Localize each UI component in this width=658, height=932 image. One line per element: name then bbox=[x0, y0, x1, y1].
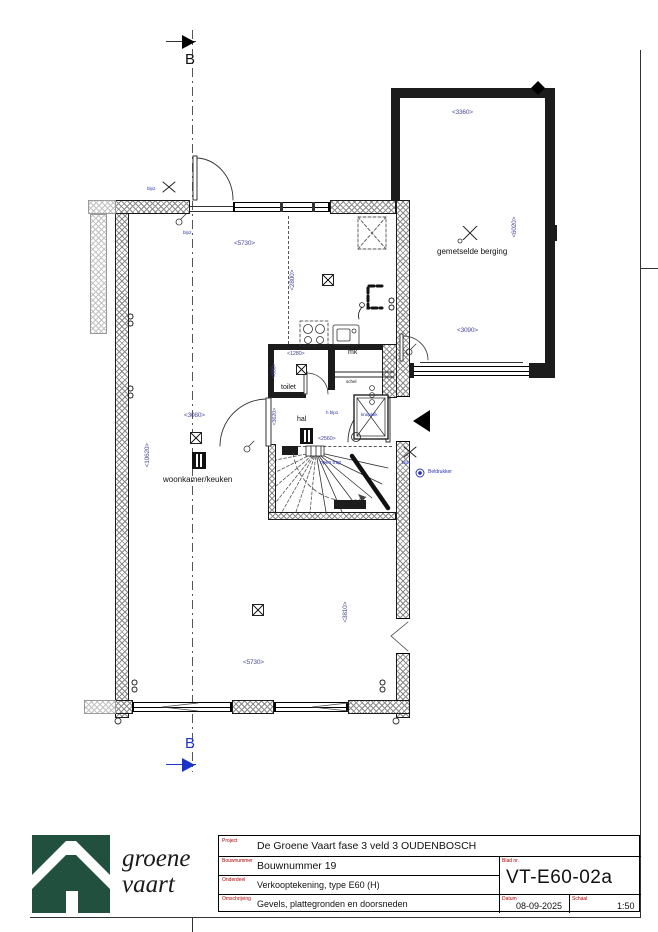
dim-5730-top: <5730> bbox=[234, 241, 255, 248]
dim-6020: <6020> bbox=[505, 224, 526, 231]
tb-col-line-2 bbox=[569, 894, 570, 913]
socket-south-1 bbox=[130, 678, 139, 694]
tb-col-line-1 bbox=[499, 856, 500, 913]
kitchen-hob bbox=[300, 321, 328, 346]
plan-linework bbox=[0, 0, 658, 932]
logo-word-2: vaart bbox=[122, 872, 191, 898]
dim-3090: <3090> bbox=[457, 328, 478, 335]
entrance-arrow-icon bbox=[413, 410, 430, 432]
room-label-toilet: toilet bbox=[281, 384, 296, 391]
tb-row-line-2 bbox=[219, 875, 499, 876]
company-logo bbox=[32, 835, 110, 913]
dim-3080: <3080> bbox=[184, 413, 205, 420]
boiler-position bbox=[358, 286, 382, 319]
stairs bbox=[276, 446, 388, 512]
toilet-door bbox=[304, 372, 328, 394]
bell-button-icon bbox=[416, 469, 424, 477]
tb-label-omschrijving: Omschrijving bbox=[222, 896, 251, 902]
room-label-mk: mk bbox=[348, 349, 357, 356]
tb-row-line-3 bbox=[219, 894, 641, 895]
tb-label-project: Project bbox=[222, 838, 238, 844]
dim-3360: <3360> bbox=[452, 110, 473, 117]
tb-label-schaal: Schaal bbox=[572, 896, 587, 902]
tb-datum: 08-09-2025 bbox=[516, 901, 562, 911]
tb-row-line-1 bbox=[219, 856, 641, 857]
tb-label-bouwnummer: Bouwnummer bbox=[222, 858, 253, 864]
dim-880: <880> bbox=[268, 368, 283, 374]
tb-blad-nr: VT-E60-02a bbox=[506, 867, 612, 889]
logo-house-icon bbox=[32, 835, 110, 913]
logo-word-1: groene bbox=[122, 846, 191, 872]
lightpoint-living-2 bbox=[252, 604, 264, 616]
radiator-hall bbox=[300, 428, 313, 444]
tb-label-blad: Blad nr. bbox=[502, 858, 519, 864]
label-blp2-b: blp2 bbox=[183, 231, 192, 236]
socket-west-1 bbox=[126, 312, 135, 328]
front-door bbox=[193, 156, 233, 200]
label-open-stair: open trap bbox=[320, 461, 341, 466]
storage-lamp-dot bbox=[458, 239, 462, 243]
socket-south-2 bbox=[378, 678, 387, 694]
tb-omschrijving: Gevels, plattegronden en doorsneden bbox=[257, 899, 408, 909]
socket-kitchen-east bbox=[387, 296, 396, 312]
tb-project: De Groene Vaart fase 3 veld 3 OUDENBOSCH bbox=[257, 840, 476, 852]
dim-2800: <2800> bbox=[283, 277, 304, 284]
lightpoint-living-1 bbox=[190, 432, 202, 444]
room-label-storage: gemetselde berging bbox=[437, 248, 507, 256]
tb-label-onderdeel: Onderdeel bbox=[222, 877, 245, 883]
room-label-hall: hal bbox=[297, 416, 306, 423]
dim-3620: <3620> bbox=[267, 414, 284, 420]
dim-10620: <10620> bbox=[136, 452, 160, 459]
kitchen-sink bbox=[333, 325, 359, 345]
radiator-living bbox=[192, 452, 206, 469]
hall-door bbox=[220, 398, 271, 446]
kitchen-vent-box bbox=[358, 217, 386, 249]
dim-3810: <3810> bbox=[336, 609, 357, 616]
storage-door bbox=[400, 334, 428, 361]
window-opening-symbols bbox=[162, 622, 408, 711]
label-blp2-a: blp2 bbox=[147, 187, 156, 192]
label-crawl-hatch: kruipluik bbox=[361, 413, 378, 418]
lightpoint-toilet bbox=[296, 364, 307, 375]
mk-door bbox=[335, 372, 394, 377]
tb-schaal: 1:50 bbox=[617, 901, 635, 911]
tb-label-datum: Datum bbox=[502, 896, 517, 902]
rainpipe-icons bbox=[115, 718, 399, 724]
tb-bouwnummer: Bouwnummer 19 bbox=[257, 860, 336, 872]
drawing-sheet: B B bbox=[0, 0, 658, 932]
socket-west-2 bbox=[126, 384, 135, 400]
lightpoint-kitchen bbox=[322, 274, 334, 286]
storage-corner-diamond bbox=[531, 81, 545, 95]
title-block: Project De Groene Vaart fase 3 veld 3 OU… bbox=[218, 835, 640, 912]
tb-onderdeel: Verkooptekening, type E60 (H) bbox=[257, 880, 380, 890]
label-bell-button: Beldrukker bbox=[428, 470, 452, 475]
label-chime: schel bbox=[346, 380, 357, 385]
dim-1280: <1280> bbox=[287, 352, 304, 358]
label-blp1: blp1 bbox=[402, 461, 411, 466]
logo-text: groene vaart bbox=[122, 846, 191, 898]
dim-2560: <2560> bbox=[318, 437, 335, 443]
label-h-blp1: h blp1 bbox=[326, 411, 338, 416]
dim-5730-bottom: <5730> bbox=[243, 660, 264, 667]
room-label-living: woonkamer/keuken bbox=[163, 476, 232, 484]
